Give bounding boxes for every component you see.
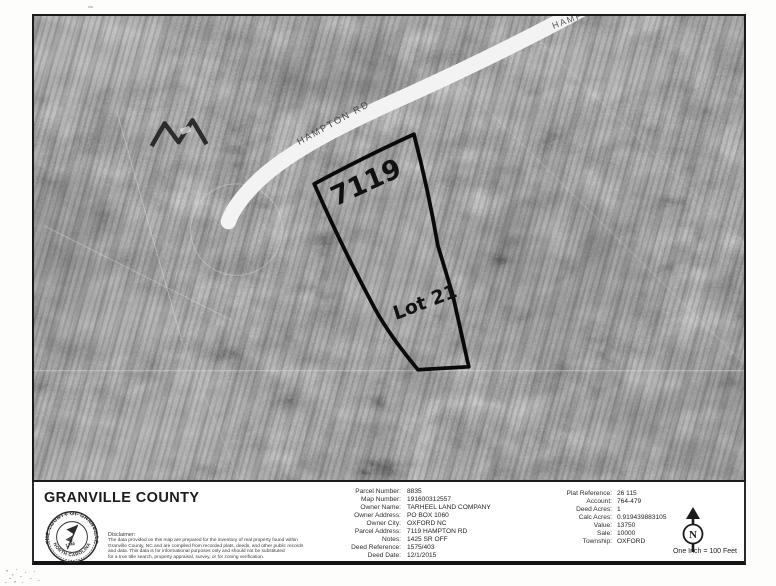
- map-footer: GRANVILLE COUNTY THE COUNTY OF GRANVILLE…: [32, 482, 746, 565]
- info-value: 1425 SR OFF: [407, 536, 491, 544]
- info-label: Calc Acres:: [504, 514, 612, 522]
- plat-info-column: Plat Reference:26 115 Account:764-479 De…: [504, 490, 667, 546]
- scan-artifact-tick: [88, 6, 93, 8]
- info-label: Account:: [504, 498, 612, 506]
- info-value: 191600312557: [407, 496, 491, 504]
- info-label: Deed Acres:: [504, 506, 612, 514]
- info-value: 1: [617, 506, 667, 514]
- info-value: 1575/403: [407, 544, 491, 552]
- info-value: 7119 HAMPTON RD: [407, 528, 491, 536]
- north-label: N: [689, 529, 697, 541]
- photo-streaks-coarse: [34, 16, 744, 480]
- info-label: Notes:: [274, 536, 401, 544]
- info-label: Township:: [504, 538, 612, 546]
- info-label: Parcel Number:: [274, 488, 401, 496]
- info-value: TARHEEL LAND COMPANY: [407, 504, 491, 512]
- aerial-photo-canvas: HAMPTON RD HAMPTO 7119 Lot 21: [34, 16, 744, 480]
- info-label: Parcel Address:: [274, 528, 401, 536]
- info-value: OXFORD: [617, 538, 667, 546]
- scale-text: One Inch = 100 Feet: [673, 548, 737, 555]
- info-label: Owner Name:: [274, 504, 401, 512]
- aerial-photo: HAMPTON RD HAMPTO 7119 Lot 21: [32, 14, 746, 482]
- scan-speckles: [0, 566, 70, 586]
- info-value: 764-479: [617, 498, 667, 506]
- info-label: Owner City:: [274, 520, 401, 528]
- info-label: Value:: [504, 522, 612, 530]
- info-value: 10000: [617, 530, 667, 538]
- county-title: GRANVILLE COUNTY: [44, 490, 199, 506]
- parcel-info-column: Parcel Number:8835 Map Number:1916003125…: [274, 488, 491, 560]
- info-value: 12/1/2015: [407, 552, 491, 560]
- info-value: 8835: [407, 488, 491, 496]
- info-label: Owner Address:: [274, 512, 401, 520]
- info-value: 26 115: [617, 490, 667, 498]
- seal-year: 1746: [65, 541, 76, 548]
- info-value: 0.919439883105: [617, 514, 667, 522]
- info-value: 13750: [617, 522, 667, 530]
- info-label: Plat Reference:: [504, 490, 612, 498]
- info-label: Deed Reference:: [274, 544, 401, 552]
- info-label: Deed Date:: [274, 552, 401, 560]
- info-value: PO BOX 1060: [407, 512, 491, 520]
- info-label: Map Number:: [274, 496, 401, 504]
- info-value: OXFORD NC: [407, 520, 491, 528]
- info-label: Sale:: [504, 530, 612, 538]
- county-seal: THE COUNTY OF GRANVILLE NORTH CAROLINA 1…: [44, 509, 100, 565]
